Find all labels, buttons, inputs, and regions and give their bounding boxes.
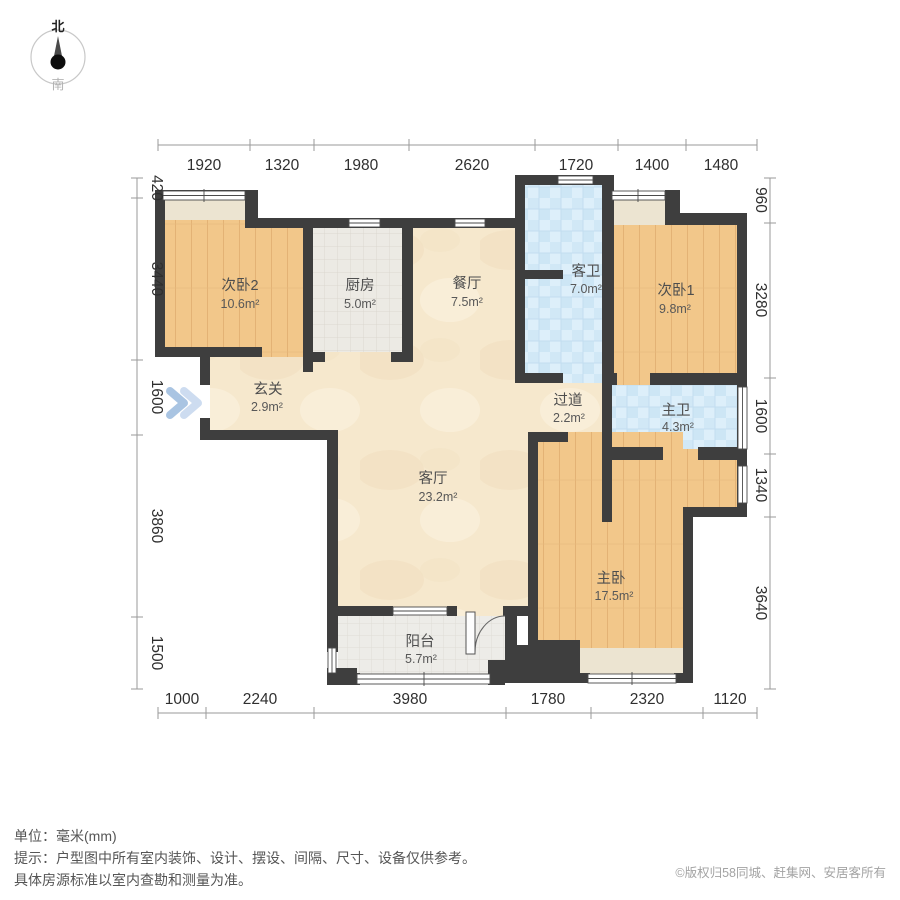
- room-label-master-bedroom: 主卧: [597, 570, 626, 587]
- disclaimer-line2: 具体房源标准以室内查勘和测量为准。: [14, 870, 252, 892]
- dim-top-0: 1920: [187, 157, 222, 174]
- room-label-dining: 餐厅: [453, 275, 482, 292]
- room-label-hallway: 过道: [554, 392, 583, 409]
- dim-left-3: 3860: [148, 509, 165, 544]
- door-opening-bedroom1: [617, 373, 650, 385]
- dim-right-0: 960: [752, 187, 769, 213]
- dim-bottom-2: 3980: [393, 691, 428, 708]
- door-leaf: [466, 612, 475, 654]
- dimension-labels-right: 960 3280 1600 1340 3640: [752, 187, 769, 621]
- room-area-bedroom1: 9.8m²: [659, 302, 691, 316]
- unit-note: 单位：毫米(mm): [14, 826, 117, 848]
- window-balcony-bottom: [357, 672, 490, 686]
- dim-bottom-4: 2320: [630, 691, 665, 708]
- dim-left-1: 3440: [148, 262, 165, 297]
- room-label-bedroom1: 次卧1: [657, 282, 694, 299]
- window-master-bay-bottom: [588, 672, 676, 685]
- floor-plan-page: 北 南: [0, 0, 900, 900]
- window-kitchen-top: [349, 219, 380, 227]
- room-area-master-bath: 4.3m²: [662, 420, 694, 434]
- room-label-bedroom2: 次卧2: [221, 277, 258, 294]
- dim-top-6: 1480: [704, 157, 739, 174]
- dim-top-1: 1320: [265, 157, 300, 174]
- bay-window-strip-bedroom1: [614, 200, 665, 228]
- room-area-master-bedroom: 17.5m²: [595, 589, 634, 603]
- dim-top-2: 1980: [344, 157, 379, 174]
- door-opening-bedroom2: [262, 347, 303, 357]
- room-area-hallway: 2.2m²: [553, 411, 585, 425]
- dim-top-3: 2620: [455, 157, 490, 174]
- copyright-notice: ©版权归58同城、赶集网、安居客所有: [675, 862, 886, 881]
- door-opening-balcony: [457, 606, 503, 616]
- room-area-living: 23.2m²: [419, 490, 458, 504]
- room-label-balcony: 阳台: [406, 633, 435, 650]
- dim-top-4: 1720: [559, 157, 594, 174]
- dim-bottom-5: 1120: [713, 691, 747, 708]
- floor-bedroom1: [614, 225, 737, 375]
- window-guest-bath-top: [558, 176, 593, 184]
- window-balcony-left: [328, 648, 336, 673]
- window-bedroom1-top: [612, 189, 665, 202]
- floor-living: [338, 430, 528, 613]
- room-label-master-bath: 主卫: [662, 402, 691, 419]
- bay-window-strip-bedroom2: [165, 198, 245, 222]
- window-balcony-top: [393, 607, 447, 615]
- dim-bottom-3: 1780: [531, 691, 566, 708]
- dim-left-2: 1600: [148, 380, 165, 415]
- dim-top-5: 1400: [635, 157, 670, 174]
- dim-bottom-0: 1000: [165, 691, 200, 708]
- floor-guest-bath: [525, 185, 602, 375]
- dim-left-4: 1500: [148, 636, 165, 671]
- room-label-kitchen: 厨房: [346, 277, 375, 294]
- disclaimer-line1: 提示：户型图中所有室内装饰、设计、摆设、间隔、尺寸、设备仅供参考。: [14, 848, 476, 870]
- room-label-entry: 玄关: [254, 381, 283, 398]
- entry-arrow-icon: [170, 391, 198, 415]
- window-dining-top: [455, 219, 485, 227]
- room-label-guest-bath: 客卫: [572, 263, 601, 280]
- dim-right-1: 3280: [752, 283, 769, 318]
- dim-right-2: 1600: [752, 399, 769, 434]
- window-master-bedroom-right: [738, 466, 747, 503]
- window-bedroom2-top: [163, 189, 245, 202]
- door-opening-guest-bath: [563, 373, 602, 383]
- room-area-guest-bath: 7.0m²: [570, 282, 602, 296]
- door-opening-kitchen: [325, 352, 391, 362]
- window-master-bath-right: [738, 387, 747, 449]
- room-area-entry: 2.9m²: [251, 400, 283, 414]
- dim-right-3: 1340: [752, 468, 769, 503]
- bay-window-strip-master: [580, 648, 683, 674]
- dimension-labels-bottom: 1000 2240 3980 1780 2320 1120: [165, 691, 747, 708]
- compass: 北 南: [31, 19, 85, 92]
- room-area-kitchen: 5.0m²: [344, 297, 376, 311]
- dim-right-4: 3640: [752, 586, 769, 621]
- dimension-labels-top: 1920 1320 1980 2620 1720 1400 1480: [187, 157, 739, 174]
- compass-north-label: 北: [51, 19, 64, 34]
- dim-left-0: 420: [148, 175, 165, 201]
- room-area-bedroom2: 10.6m²: [221, 297, 260, 311]
- dim-bottom-1: 2240: [243, 691, 278, 708]
- room-area-balcony: 5.7m²: [405, 652, 437, 666]
- compass-south-label: 南: [51, 77, 64, 92]
- room-area-dining: 7.5m²: [451, 295, 483, 309]
- floor-plan-canvas: 北 南: [0, 0, 900, 900]
- room-label-living: 客厅: [419, 470, 448, 487]
